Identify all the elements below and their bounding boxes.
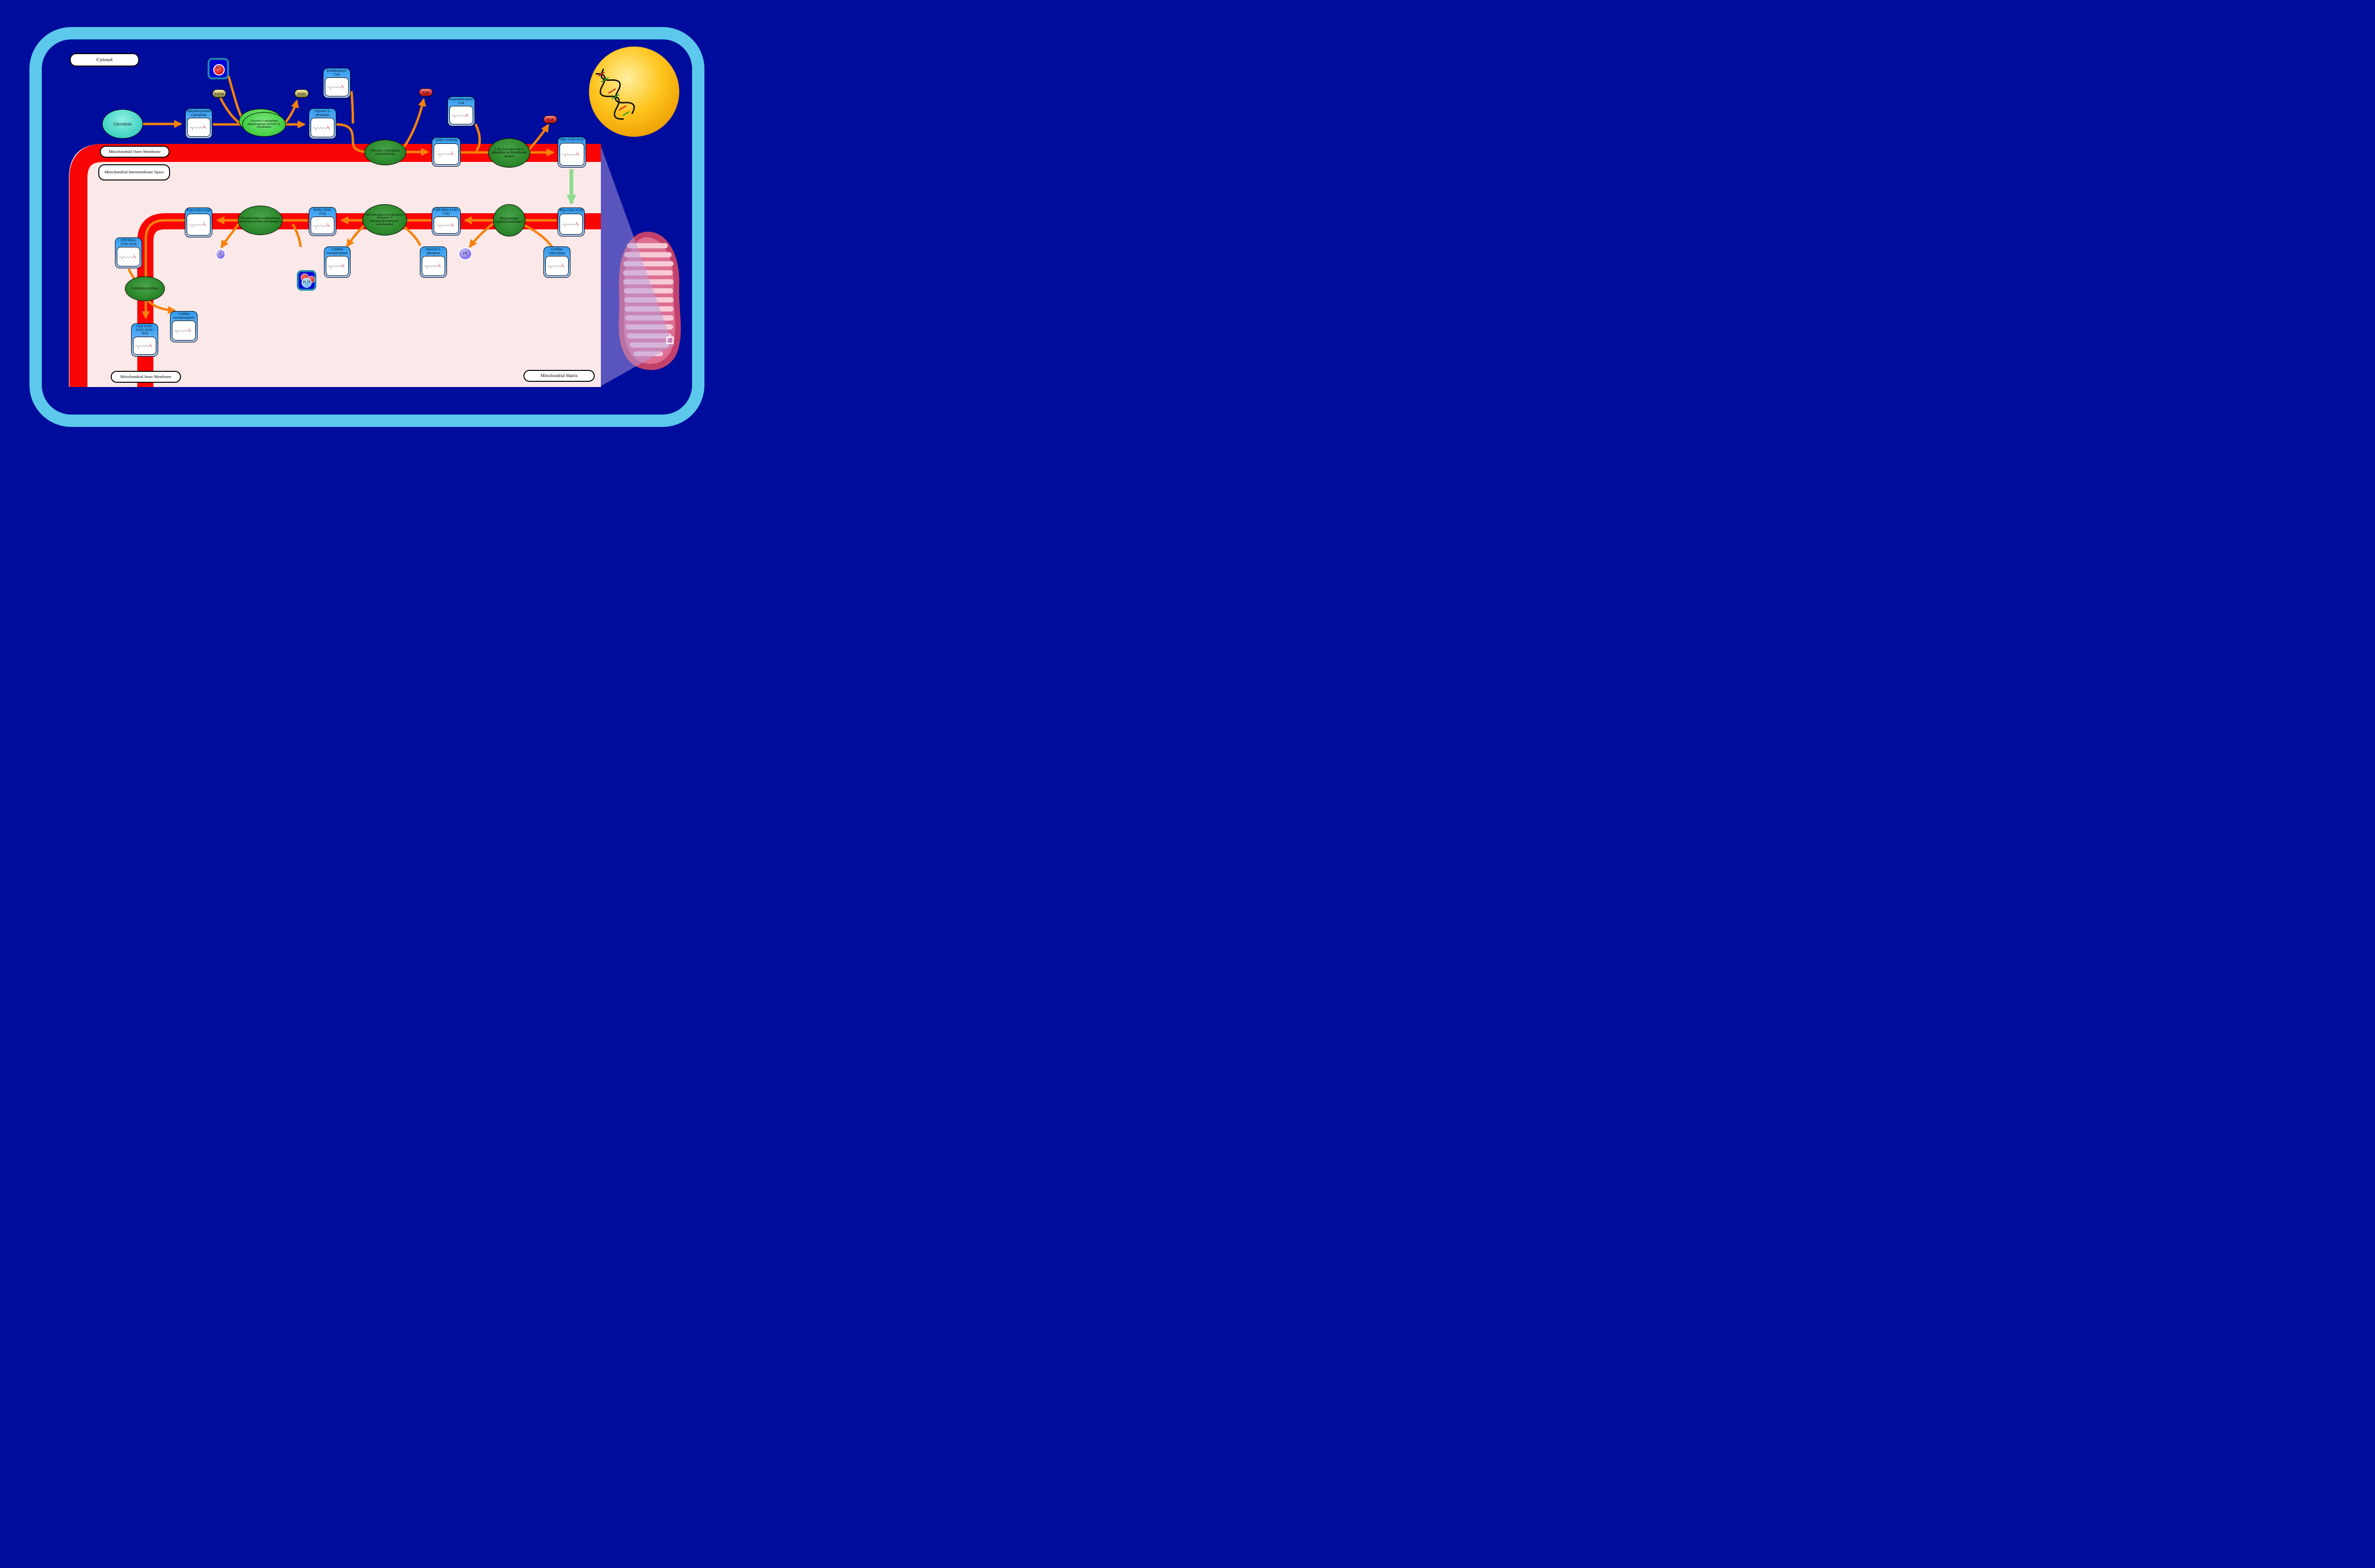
metabolite-label: Cytidine monophosphate [324, 247, 350, 255]
metabolite-label: PA(i-13:0/i-15:0) [558, 137, 586, 142]
metabolite-label: Isotridecanoyl-CoA [323, 68, 350, 76]
compartment-label-cytosol: Cytosol [70, 53, 139, 66]
compartment-label-outer-membrane: Mitochondrial Outer Membrane [100, 146, 170, 158]
cofactor-nad[interactable]: NAD [294, 89, 309, 98]
chemical-structure [173, 326, 194, 335]
chemical-structure [436, 150, 457, 158]
chemical-structure [547, 262, 568, 270]
proton-icon[interactable]: H+ [208, 58, 229, 79]
pyrophosphate-ppi[interactable]: PPi [458, 247, 472, 260]
metabolite-label: CL(i-13:0/i-15:0/i-22:0/i-16:0) [132, 324, 158, 336]
chemical-structure [189, 123, 209, 132]
metabolite-lpa[interactable]: LPA(i-13:0/0:0) [432, 137, 461, 167]
chemical-structure [326, 83, 347, 91]
chemical-structure [327, 262, 348, 270]
chemical-structure [451, 111, 472, 120]
compartment-label-intermembrane-space: Mitochondrial Intermembrane Space [98, 164, 170, 180]
enzyme-cardiolipin-synthase[interactable]: Cardiolipin synthase [125, 276, 165, 301]
phosphate-pi[interactable]: Pi [216, 249, 226, 260]
metabolite-label: Cytidine monophosphate [171, 312, 197, 320]
metabolite-cmp-synthase[interactable]: Cytidine monophosphate [170, 311, 198, 342]
metabolite-pa-inner[interactable]: PA(i-13:0/i-15:0) [558, 208, 585, 236]
metabolite-label: PG(i-13:0/i-15:0) [185, 208, 212, 213]
metabolite-label: PGP(i-13:0/i-15:0) [309, 208, 336, 216]
chemical-structure [436, 221, 457, 229]
chemical-structure [561, 150, 582, 159]
metabolite-label: CDP-DG(i-13:0/i-15:0) [432, 208, 460, 216]
proton-label: H+ [209, 65, 227, 70]
metabolite-label: Cytidine triphosphate [544, 247, 570, 255]
compartment-label-matrix: Mitochondrial Matrix [523, 370, 595, 382]
metabolite-cmp-matrix[interactable]: Cytidine monophosphate [324, 246, 351, 278]
water-icon[interactable]: H2O [297, 270, 316, 291]
metabolite-label: Glycerol 3-phosphate [309, 109, 336, 117]
enzyme-pgp-phosphatase[interactable]: Phosphatidylglycerophosphatase and prote… [238, 206, 283, 235]
enzyme-pct2[interactable]: Phosphatidate cytidylyltransferase 2 [493, 204, 525, 236]
metabolite-pa-outer[interactable]: PA(i-13:0/i-15:0) [558, 137, 586, 168]
enzyme-agpat-epsilon[interactable]: 1-Acyl-sn-glycerol-3-phosphate acyltrans… [488, 138, 530, 168]
chemical-structure [561, 220, 582, 228]
chemical-structure [423, 262, 444, 270]
chemical-structure [188, 220, 209, 229]
metabolite-label: Dihydroxyacetone phosphate [186, 109, 212, 117]
metabolite-pg[interactable]: PG(i-13:0/i-15:0) [185, 208, 212, 237]
enzyme-gpat[interactable]: Glycerol-3-phosphate acyltransferase [364, 140, 406, 165]
pi-label: Pi [219, 252, 222, 257]
metabolite-pgp[interactable]: PGP(i-13:0/i-15:0) [309, 207, 336, 236]
ppi-label: PPi [463, 251, 467, 257]
metabolite-cdp-dg-2[interactable]: CDP-DG(i-22:0/i-16:0) [115, 237, 142, 268]
process-glycolysis[interactable]: Glycolysis [102, 109, 143, 139]
metabolite-g3p-cytosol[interactable]: Glycerol 3-phosphate [309, 108, 336, 139]
metabolite-label: PA(i-13:0/i-15:0) [558, 208, 584, 213]
metabolite-g3p-matrix[interactable]: Glycerol 3-phosphate [420, 246, 447, 278]
water-label: H2O [299, 280, 314, 285]
chemical-structure [118, 253, 139, 261]
metabolite-label: Glycerol 3-phosphate [420, 247, 446, 255]
metabolite-ctp[interactable]: Cytidine triphosphate [543, 246, 570, 278]
nucleus-dna-illustration [589, 47, 679, 137]
metabolite-cdp-dg-1[interactable]: CDP-DG(i-13:0/i-15:0) [432, 207, 461, 236]
cofactor-coa-2[interactable]: CoA [543, 115, 557, 123]
enzyme-cds-mitochondrial[interactable]: CDP-diacylglycerol--glycerol-3-phosphate… [362, 204, 407, 236]
chemical-structure [134, 341, 155, 350]
metabolite-dhap[interactable]: Dihydroxyacetone phosphate [185, 108, 212, 139]
chemical-structure [312, 221, 333, 230]
cofactor-coa-1[interactable]: CoA [419, 88, 433, 96]
chemical-structure [312, 123, 333, 132]
metabolite-label: Isopentadecanoyl-CoA [448, 97, 475, 105]
compartment-label-inner-membrane: Mitochondrial Inner Membrane [111, 371, 181, 383]
enzyme-gpd[interactable]: Glycerol-3-phosphate dehydrogenase [NAD(… [242, 112, 286, 137]
metabolite-label: CDP-DG(i-22:0/i-16:0) [115, 238, 142, 246]
metabolite-cl[interactable]: CL(i-13:0/i-15:0/i-22:0/i-16:0) [131, 323, 158, 357]
metabolite-isotridecanoyl-coa[interactable]: Isotridecanoyl-CoA [323, 68, 351, 98]
cofactor-nadh[interactable]: NADH [212, 89, 226, 98]
metabolite-isopentadecanoyl-coa[interactable]: Isopentadecanoyl-CoA [447, 96, 475, 126]
metabolite-label: LPA(i-13:0/0:0) [432, 138, 460, 142]
pathway-diagram: Cytosol Mitochondrial Outer Membrane Mit… [0, 0, 745, 455]
